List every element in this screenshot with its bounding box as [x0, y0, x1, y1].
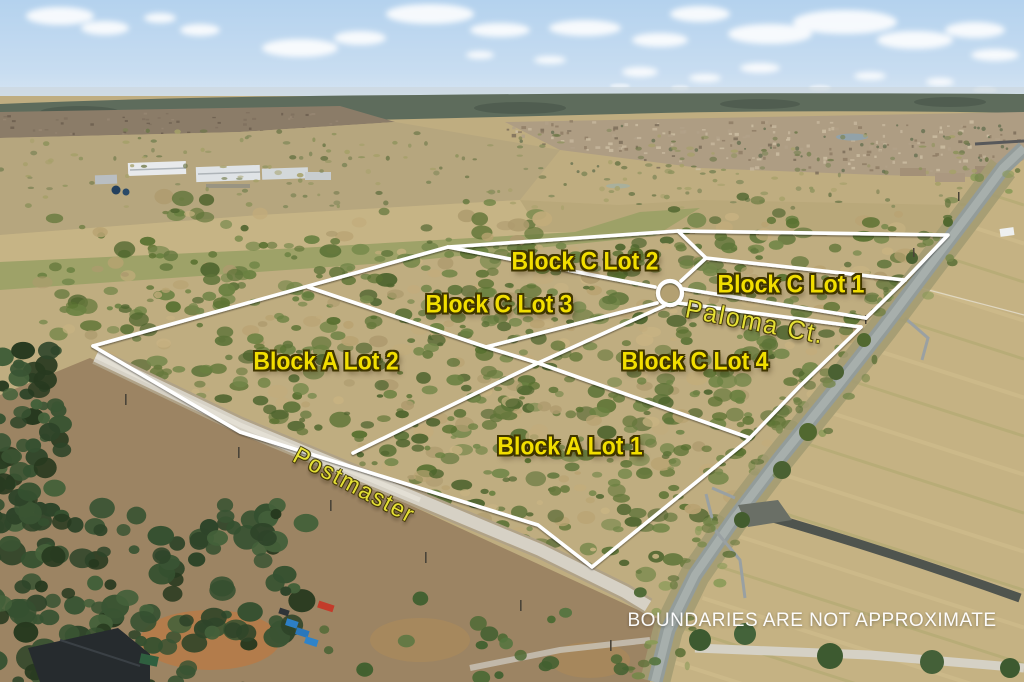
dirt-patch [370, 618, 470, 662]
aerial-scene [0, 0, 1024, 682]
aerial-lot-photo: Block C Lot 2 Block C Lot 1 Block C Lot … [0, 0, 1024, 682]
